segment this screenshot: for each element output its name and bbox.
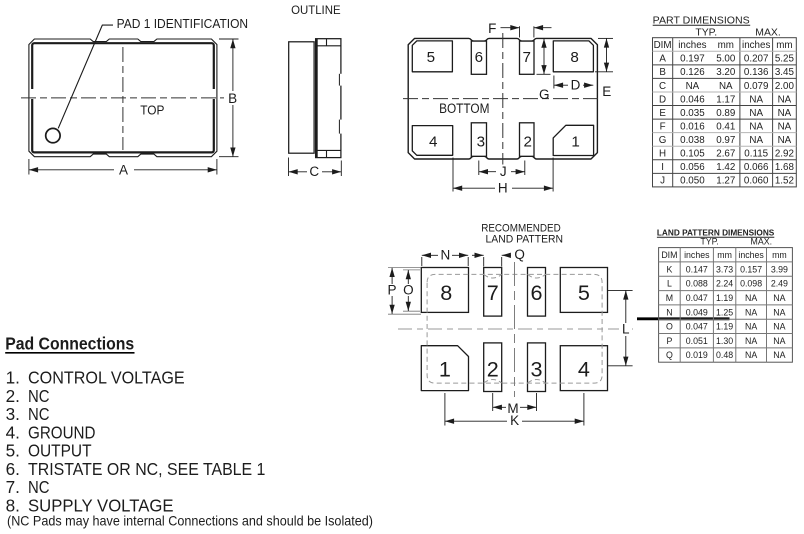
svg-text:0.016: 0.016	[680, 121, 705, 132]
svg-text:0.41: 0.41	[716, 121, 735, 132]
svg-text:E: E	[659, 108, 666, 119]
svg-text:L: L	[622, 322, 630, 337]
svg-text:NA: NA	[778, 94, 792, 105]
svg-text:2.: 2.	[6, 386, 20, 406]
svg-text:0.056: 0.056	[680, 162, 705, 173]
svg-text:2: 2	[523, 133, 531, 150]
svg-text:8: 8	[570, 49, 578, 66]
svg-text:C: C	[309, 164, 319, 179]
svg-text:6.: 6.	[6, 459, 20, 479]
svg-text:4.: 4.	[6, 422, 20, 442]
svg-text:NC: NC	[28, 386, 50, 406]
svg-text:NA: NA	[745, 293, 757, 303]
svg-text:0.079: 0.079	[744, 81, 769, 92]
svg-text:1.19: 1.19	[716, 293, 733, 303]
svg-text:CONTROL VOLTAGE: CONTROL VOLTAGE	[28, 368, 185, 388]
svg-text:LAND PATTERN: LAND PATTERN	[486, 234, 564, 246]
svg-text:0.97: 0.97	[716, 135, 735, 146]
svg-text:BOTTOM: BOTTOM	[439, 101, 489, 116]
svg-text:C: C	[659, 81, 666, 92]
svg-text:Q: Q	[514, 247, 525, 262]
svg-text:N: N	[441, 247, 451, 262]
svg-text:P: P	[387, 283, 396, 298]
svg-text:OUTLINE: OUTLINE	[291, 3, 341, 17]
svg-text:L: L	[667, 279, 672, 289]
svg-text:I: I	[661, 162, 664, 173]
svg-text:0.046: 0.046	[680, 94, 705, 105]
svg-text:0.48: 0.48	[716, 350, 733, 360]
svg-text:4: 4	[578, 356, 590, 381]
svg-text:2.24: 2.24	[716, 279, 733, 289]
svg-text:2.92: 2.92	[775, 149, 794, 160]
svg-text:mm: mm	[772, 250, 787, 260]
svg-text:inches: inches	[684, 250, 710, 260]
svg-text:O: O	[403, 283, 414, 298]
svg-text:2: 2	[487, 356, 499, 381]
svg-text:inches: inches	[742, 40, 770, 51]
svg-text:3.: 3.	[6, 404, 20, 424]
svg-text:E: E	[602, 84, 611, 99]
svg-text:1.30: 1.30	[716, 336, 733, 346]
svg-text:MAX.: MAX.	[755, 27, 780, 38]
svg-text:0.066: 0.066	[744, 162, 769, 173]
svg-text:7: 7	[487, 280, 499, 305]
svg-text:H: H	[659, 149, 666, 160]
svg-text:1: 1	[571, 133, 579, 150]
svg-text:K: K	[666, 264, 672, 274]
svg-text:0.105: 0.105	[680, 149, 705, 160]
svg-text:6: 6	[475, 49, 483, 66]
svg-text:D: D	[659, 94, 666, 105]
svg-text:NC: NC	[28, 404, 50, 424]
svg-text:1.52: 1.52	[775, 176, 794, 187]
svg-text:TYP.: TYP.	[700, 236, 718, 246]
svg-text:inches: inches	[678, 40, 706, 51]
svg-text:NA: NA	[745, 336, 757, 346]
svg-text:2.00: 2.00	[775, 81, 795, 92]
svg-text:1: 1	[439, 356, 451, 381]
svg-text:7: 7	[522, 49, 530, 66]
svg-text:0.050: 0.050	[680, 176, 705, 187]
svg-text:1.42: 1.42	[716, 162, 735, 173]
svg-text:8: 8	[440, 280, 452, 305]
svg-text:H: H	[498, 180, 508, 195]
svg-text:0.89: 0.89	[716, 108, 735, 119]
svg-text:NA: NA	[773, 293, 785, 303]
svg-text:0.088: 0.088	[686, 279, 708, 289]
svg-text:NA: NA	[719, 81, 733, 92]
svg-text:NA: NA	[686, 81, 700, 92]
svg-text:F: F	[660, 121, 666, 132]
svg-text:7.: 7.	[6, 477, 20, 497]
svg-text:0.049: 0.049	[686, 307, 708, 317]
svg-text:3.20: 3.20	[716, 67, 736, 78]
svg-text:0.038: 0.038	[680, 135, 705, 146]
svg-text:NA: NA	[778, 108, 792, 119]
svg-text:inches: inches	[738, 250, 764, 260]
svg-text:3: 3	[477, 133, 485, 150]
svg-text:5.00: 5.00	[716, 54, 736, 65]
svg-text:DIM: DIM	[661, 250, 677, 260]
svg-text:0.136: 0.136	[744, 67, 769, 78]
svg-text:mm: mm	[717, 250, 732, 260]
svg-text:0.019: 0.019	[686, 350, 708, 360]
svg-text:M: M	[666, 293, 673, 303]
svg-text:G: G	[539, 87, 550, 102]
svg-text:0.147: 0.147	[686, 264, 708, 274]
svg-text:NA: NA	[749, 108, 763, 119]
svg-text:3: 3	[530, 356, 542, 381]
svg-text:0.115: 0.115	[744, 149, 768, 160]
svg-text:5: 5	[427, 49, 435, 66]
svg-text:NA: NA	[778, 121, 792, 132]
svg-text:4: 4	[429, 133, 437, 150]
svg-text:3.99: 3.99	[771, 264, 788, 274]
svg-text:NA: NA	[745, 307, 757, 317]
svg-text:0.098: 0.098	[740, 279, 762, 289]
svg-text:6: 6	[530, 280, 542, 305]
svg-text:B: B	[228, 91, 237, 106]
svg-text:2.67: 2.67	[716, 149, 735, 160]
svg-text:OUTPUT: OUTPUT	[28, 441, 92, 461]
svg-text:0.197: 0.197	[680, 54, 705, 65]
svg-text:G: G	[659, 135, 667, 146]
svg-text:3.45: 3.45	[775, 67, 795, 78]
svg-text:1.68: 1.68	[775, 162, 795, 173]
svg-text:NA: NA	[773, 307, 785, 317]
svg-text:5: 5	[578, 280, 590, 305]
svg-text:NA: NA	[749, 135, 763, 146]
svg-text:J: J	[500, 164, 507, 179]
svg-text:NC: NC	[28, 477, 50, 497]
svg-text:0.060: 0.060	[744, 176, 769, 187]
svg-text:F: F	[488, 21, 496, 36]
svg-text:1.17: 1.17	[716, 94, 735, 105]
svg-text:N: N	[666, 307, 672, 317]
svg-text:A: A	[659, 54, 666, 65]
svg-text:TYP.: TYP.	[695, 27, 717, 38]
svg-text:5.25: 5.25	[775, 54, 795, 65]
svg-text:NA: NA	[773, 350, 785, 360]
svg-text:TOP: TOP	[140, 103, 164, 118]
svg-text:NA: NA	[749, 121, 763, 132]
svg-text:NA: NA	[745, 350, 757, 360]
svg-text:O: O	[666, 322, 673, 332]
svg-text:DIM: DIM	[654, 40, 672, 51]
svg-text:PAD 1 IDENTIFICATION: PAD 1 IDENTIFICATION	[117, 16, 249, 31]
svg-text:NA: NA	[773, 336, 785, 346]
svg-text:3.73: 3.73	[716, 264, 733, 274]
svg-text:TRISTATE OR NC, SEE TABLE 1: TRISTATE OR NC, SEE TABLE 1	[28, 459, 265, 479]
svg-text:1.27: 1.27	[716, 176, 735, 187]
svg-text:(NC Pads may have internal Con: (NC Pads may have internal Connections a…	[7, 512, 373, 528]
svg-text:Q: Q	[666, 350, 673, 360]
svg-text:0.051: 0.051	[686, 336, 708, 346]
svg-text:mm: mm	[718, 40, 734, 51]
svg-text:0.207: 0.207	[744, 54, 769, 65]
svg-text:2.49: 2.49	[771, 279, 788, 289]
svg-text:NA: NA	[773, 322, 785, 332]
svg-text:1.19: 1.19	[716, 322, 733, 332]
svg-text:D: D	[571, 78, 581, 93]
svg-text:K: K	[510, 413, 519, 428]
svg-text:Pad Connections: Pad Connections	[5, 334, 134, 354]
svg-text:NA: NA	[778, 135, 792, 146]
svg-text:MAX.: MAX.	[751, 236, 773, 246]
svg-text:mm: mm	[776, 40, 792, 51]
svg-text:0.047: 0.047	[686, 322, 708, 332]
svg-text:B: B	[659, 67, 666, 78]
svg-text:NA: NA	[745, 322, 757, 332]
svg-text:P: P	[666, 336, 672, 346]
svg-text:0.035: 0.035	[680, 108, 705, 119]
svg-text:1.25: 1.25	[716, 307, 733, 317]
svg-text:1.: 1.	[6, 368, 20, 388]
svg-text:0.157: 0.157	[740, 264, 762, 274]
svg-text:5.: 5.	[6, 441, 20, 461]
svg-text:NA: NA	[749, 94, 763, 105]
svg-text:0.047: 0.047	[686, 293, 708, 303]
svg-text:J: J	[660, 176, 665, 187]
svg-text:GROUND: GROUND	[28, 422, 96, 442]
svg-text:0.126: 0.126	[680, 67, 705, 78]
svg-text:A: A	[119, 163, 128, 178]
